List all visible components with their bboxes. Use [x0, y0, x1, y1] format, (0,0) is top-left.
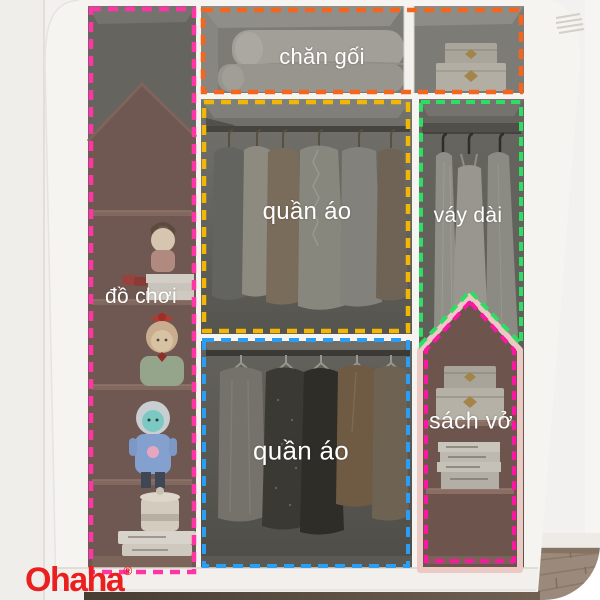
- hanging-rod-lower: [206, 350, 410, 356]
- floor-shadow-under-wardrobe: [84, 591, 540, 600]
- region-label-books: sách vở: [429, 408, 513, 435]
- dress-rail-board: [422, 123, 521, 133]
- shelf-divider: [404, 6, 414, 93]
- region-label-long-dresses: váy dài: [434, 204, 503, 228]
- brand-logo: Ohaha®: [25, 563, 132, 597]
- garments-upper: [212, 146, 408, 310]
- wardrobe-illustration: [0, 0, 600, 600]
- region-label-toys: đồ chơi: [105, 285, 177, 309]
- brand-name: Ohaha: [25, 561, 123, 599]
- registered-trademark-symbol: ®: [123, 564, 132, 578]
- product-photo: chăn gối đồ chơi quần áo váy dài quần áo…: [0, 0, 600, 600]
- region-label-clothes-lower: quần áo: [253, 436, 349, 467]
- gift-boxes-top: [436, 43, 506, 91]
- book-stack: [437, 442, 501, 489]
- region-label-clothes-upper: quần áo: [263, 198, 352, 226]
- toy-small-doll: [151, 222, 176, 272]
- region-label-bedding: chăn gối: [279, 44, 365, 70]
- hanging-rod-upper: [206, 126, 410, 132]
